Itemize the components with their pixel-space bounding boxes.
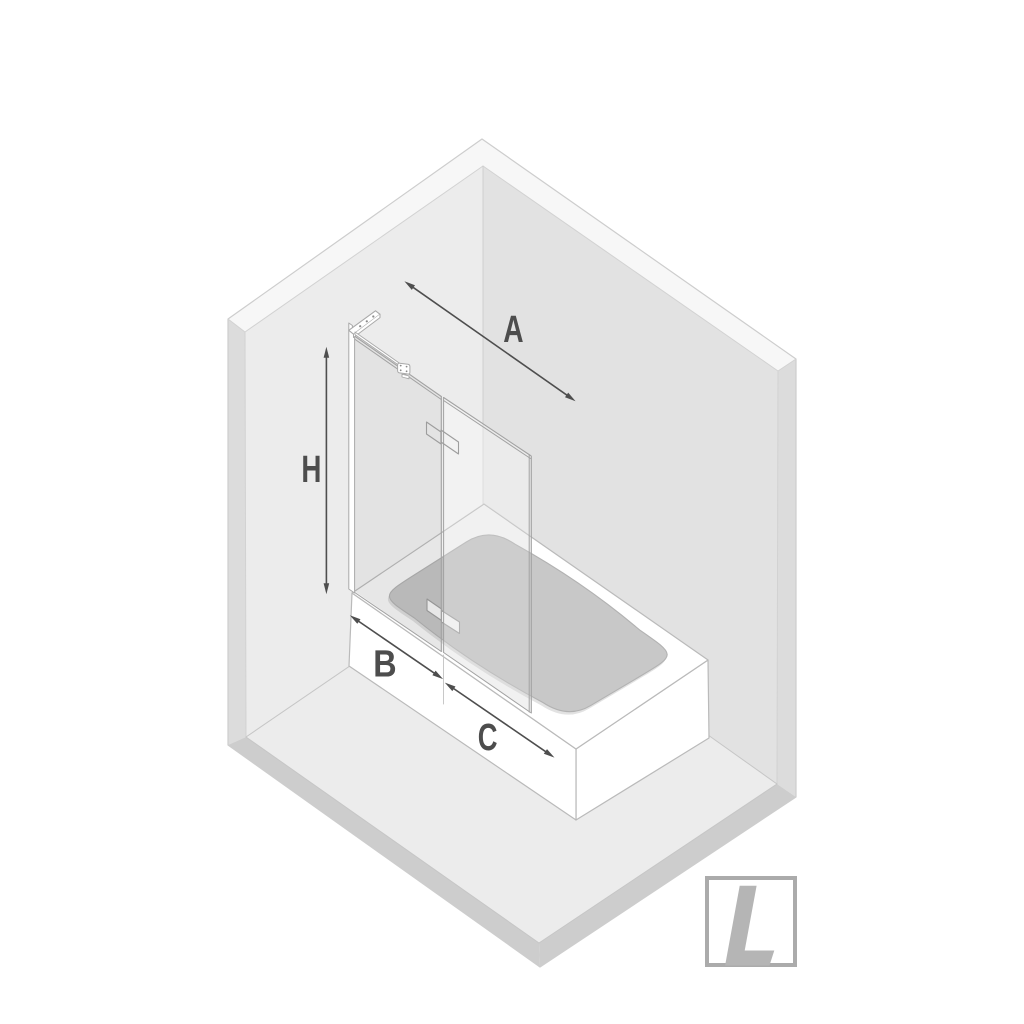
svg-text:B: B — [373, 643, 396, 685]
svg-text:C: C — [478, 717, 498, 759]
svg-text:A: A — [503, 309, 523, 351]
svg-text:H: H — [301, 449, 321, 491]
